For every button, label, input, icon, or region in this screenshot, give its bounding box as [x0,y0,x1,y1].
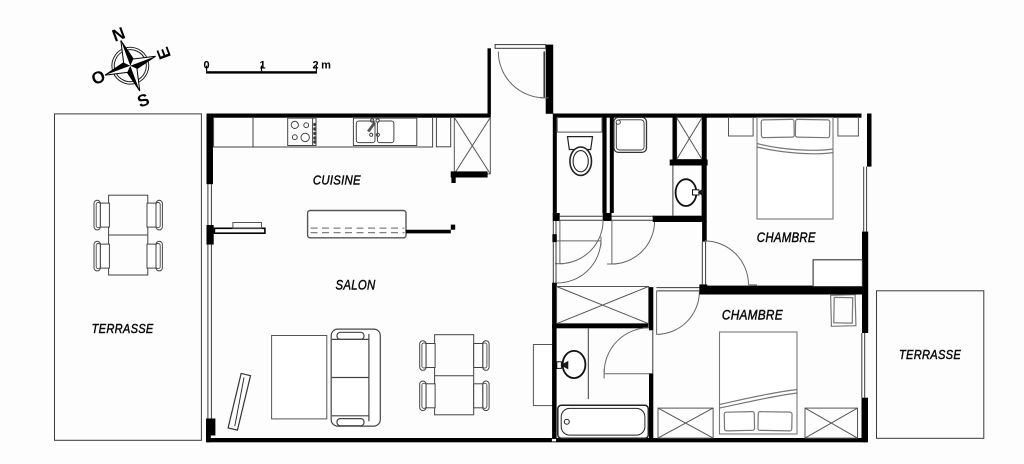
svg-text:1: 1 [259,59,265,71]
svg-text:0: 0 [204,59,210,71]
svg-text:2: 2 [312,59,318,71]
svg-text:m: m [321,59,331,71]
svg-text:SALON: SALON [336,277,376,292]
svg-text:CUISINE: CUISINE [313,173,361,188]
svg-text:CHAMBRE: CHAMBRE [722,307,784,322]
svg-text:CHAMBRE: CHAMBRE [757,230,817,245]
svg-text:TERRASSE: TERRASSE [899,348,961,362]
svg-text:TERRASSE: TERRASSE [92,322,154,336]
